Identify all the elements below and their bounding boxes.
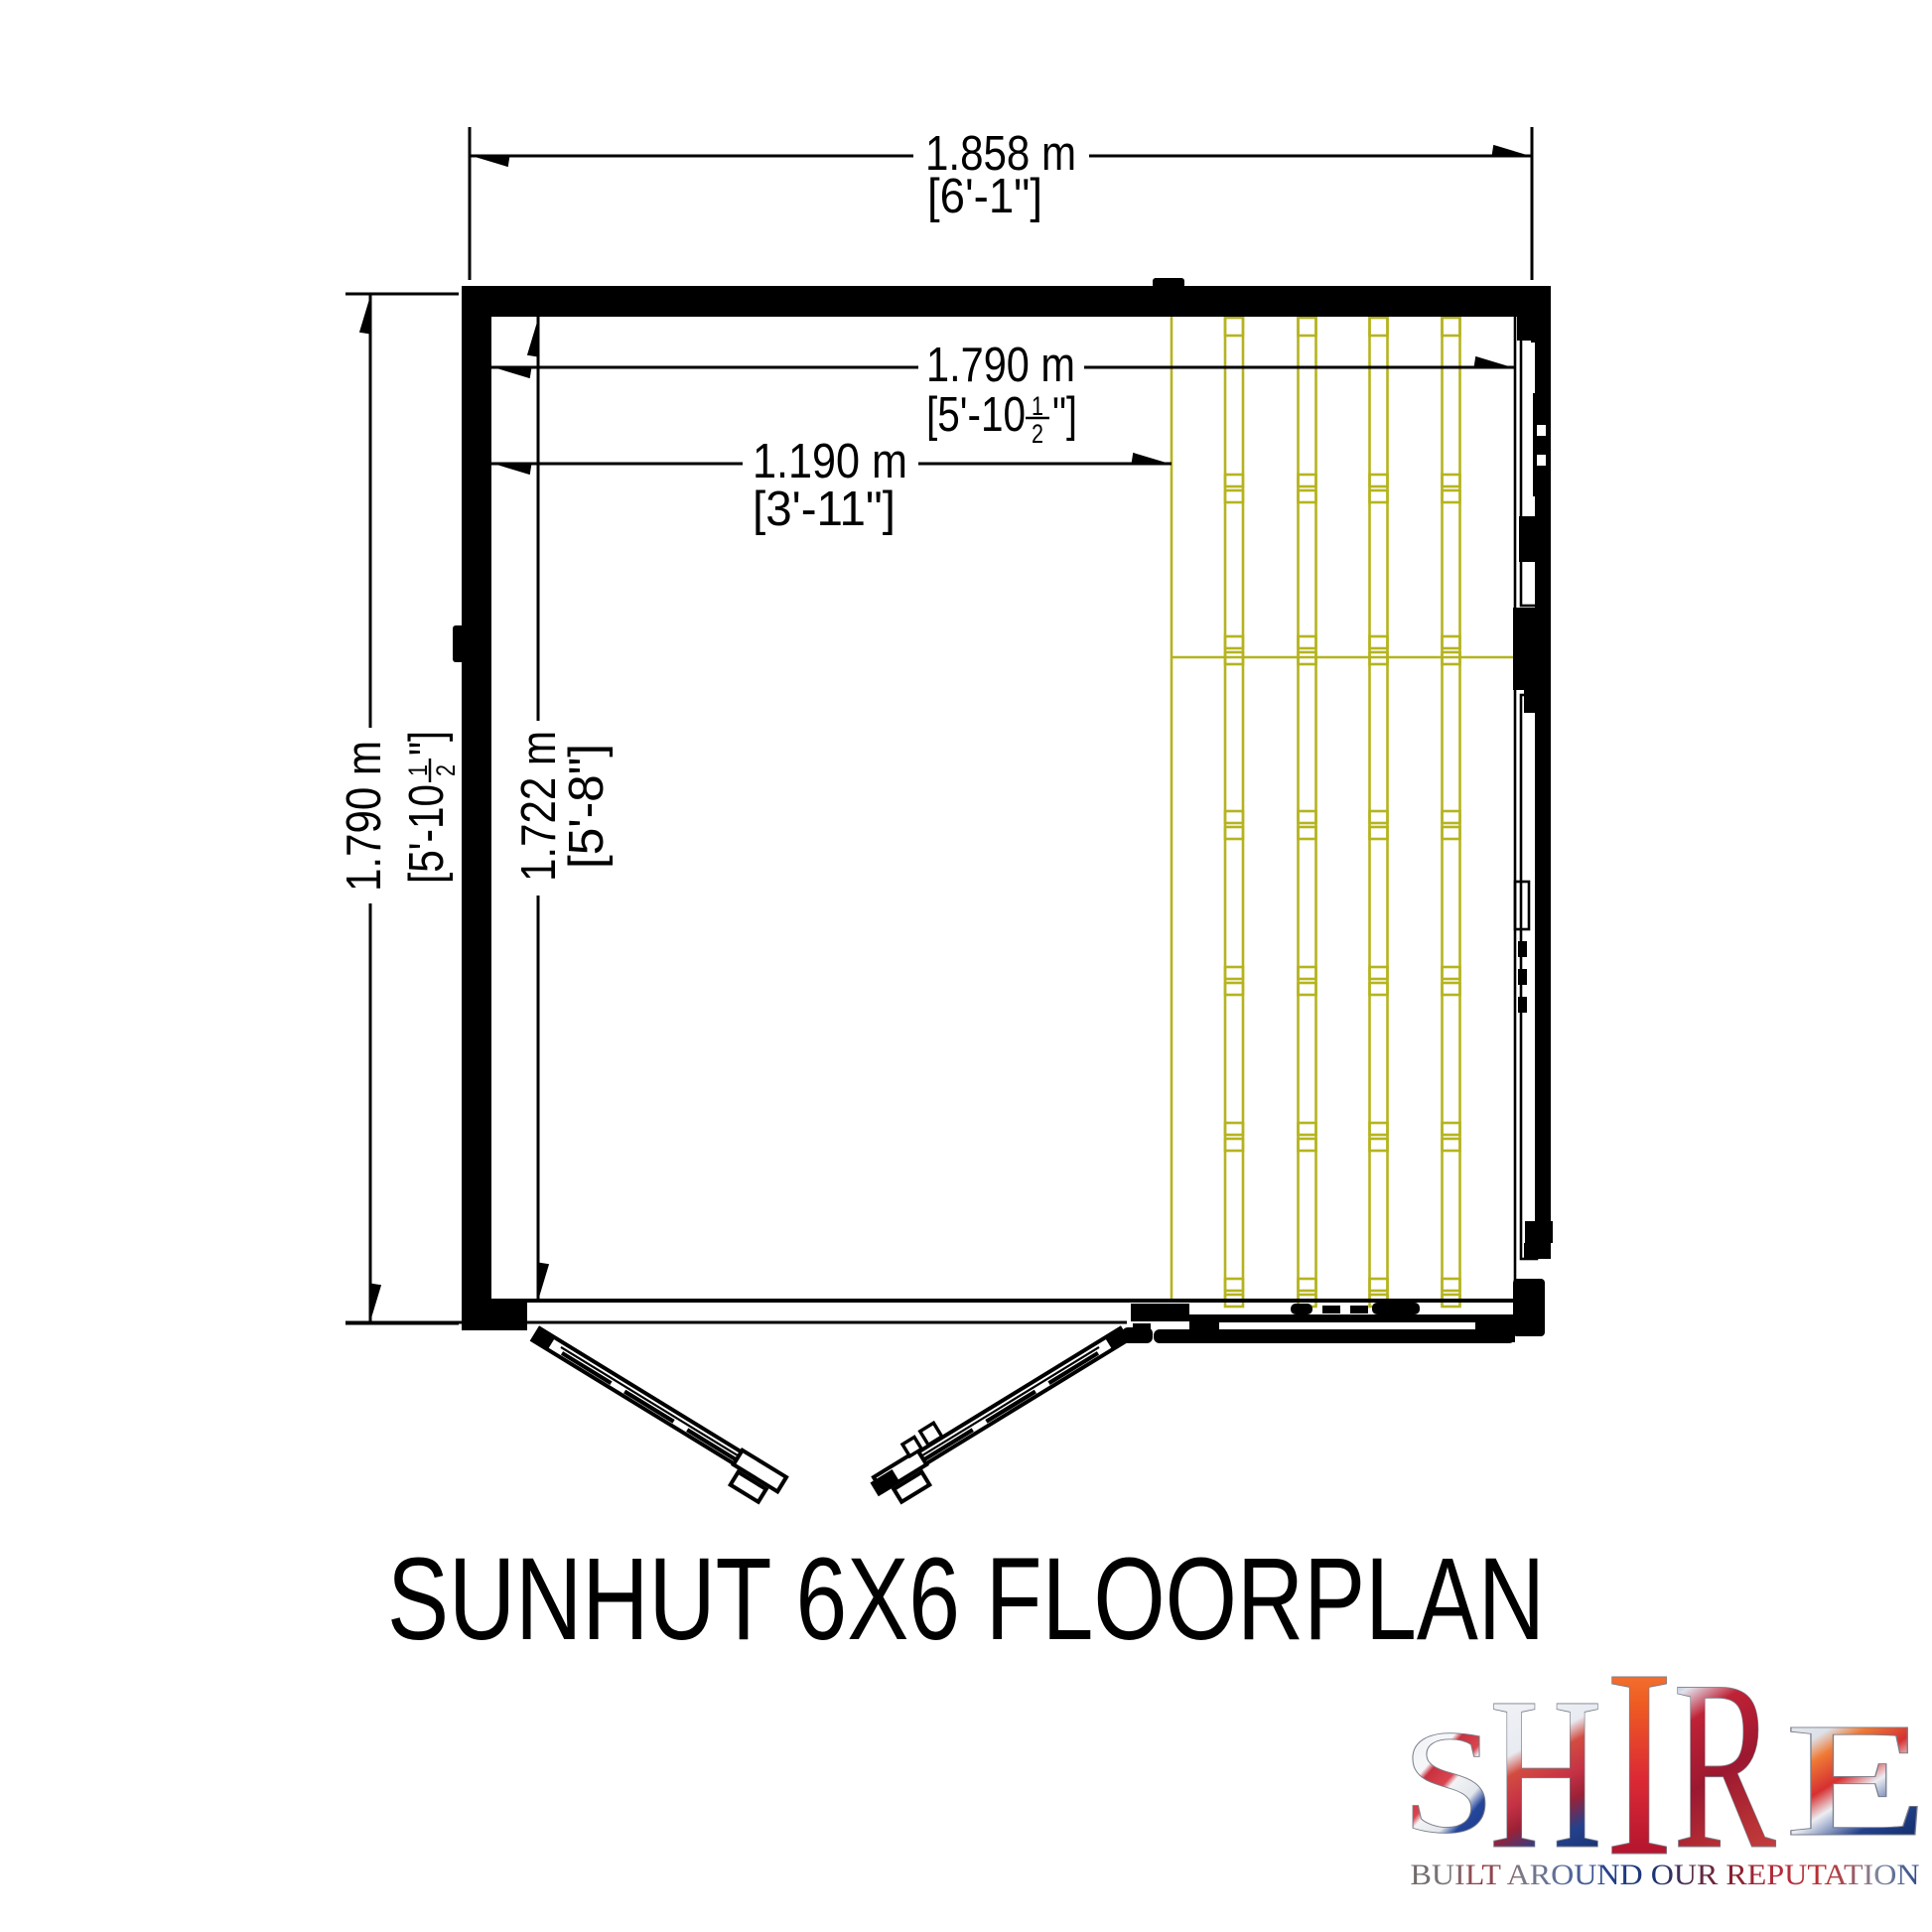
svg-text:1.790 m: 1.790 m	[338, 741, 391, 892]
svg-text:1.790 m: 1.790 m	[926, 339, 1075, 392]
svg-text:"]: "]	[400, 731, 454, 756]
svg-text:[5'-8"]: [5'-8"]	[560, 744, 614, 869]
svg-text:2: 2	[1032, 419, 1043, 449]
svg-text:S: S	[1402, 1700, 1496, 1864]
svg-text:1.190 m: 1.190 m	[753, 435, 907, 488]
svg-text:1.722 m: 1.722 m	[512, 731, 566, 882]
svg-text:1: 1	[1032, 391, 1043, 421]
svg-text:[5'-10: [5'-10	[926, 388, 1026, 442]
svg-text:SUNHUT 6X6 FLOORPLAN: SUNHUT 6X6 FLOORPLAN	[387, 1534, 1545, 1665]
svg-text:1: 1	[403, 764, 433, 776]
svg-text:[6'-1"]: [6'-1"]	[927, 170, 1042, 223]
svg-text:[5'-10: [5'-10	[400, 784, 454, 884]
svg-text:"]: "]	[1052, 388, 1077, 442]
svg-text:2: 2	[431, 764, 461, 776]
svg-text:E: E	[1784, 1689, 1929, 1870]
svg-text:[3'-11"]: [3'-11"]	[753, 483, 896, 536]
svg-text:BUILT AROUND OUR REPUTATION: BUILT AROUND OUR REPUTATION	[1411, 1859, 1920, 1891]
